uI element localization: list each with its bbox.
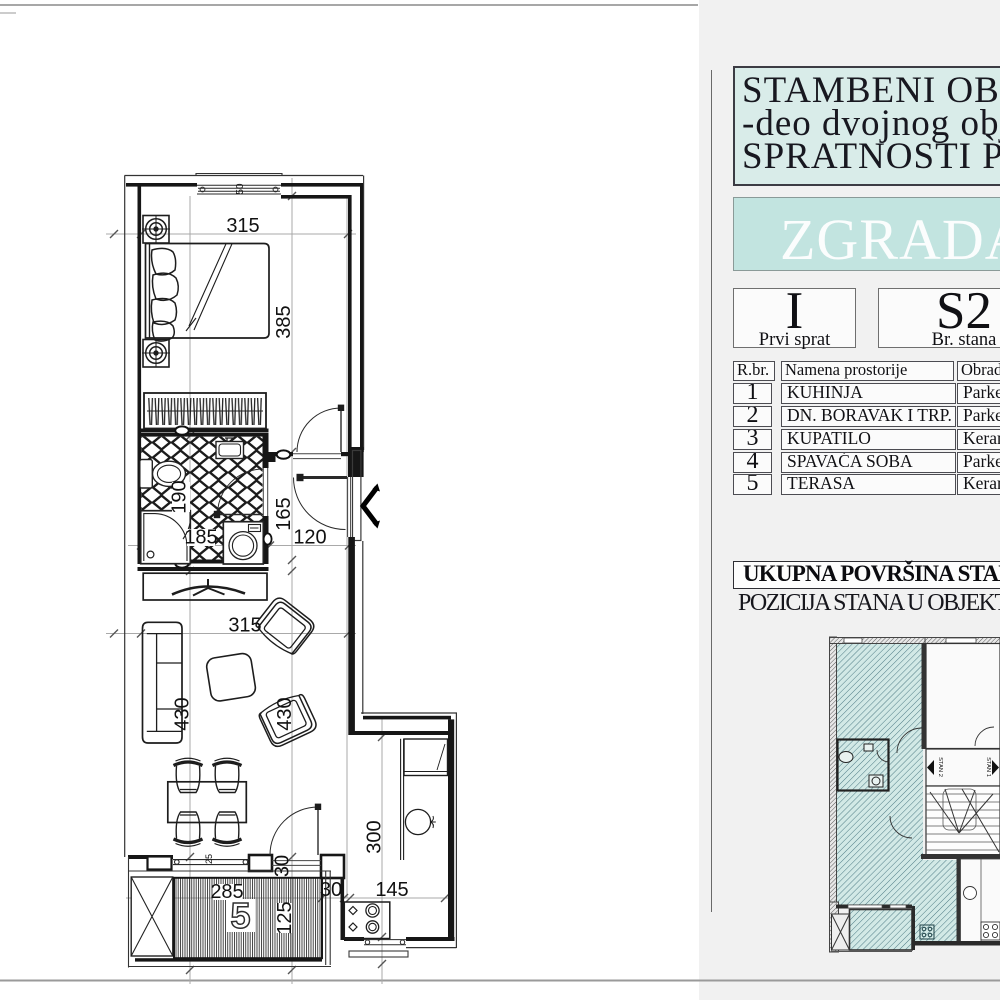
svg-text:STAN 2: STAN 2 xyxy=(937,757,943,777)
svg-text:430: 430 xyxy=(172,697,194,730)
svg-text:30: 30 xyxy=(272,855,294,877)
svg-text:165: 165 xyxy=(273,497,295,530)
svg-text:190: 190 xyxy=(169,480,191,513)
svg-text:300: 300 xyxy=(364,820,386,853)
svg-text:120: 120 xyxy=(293,527,326,549)
svg-text:430: 430 xyxy=(274,697,296,730)
svg-text:385: 385 xyxy=(273,305,295,338)
svg-text:315: 315 xyxy=(228,615,261,637)
svg-text:5: 5 xyxy=(230,895,250,936)
svg-text:25: 25 xyxy=(204,854,214,864)
svg-text:125: 125 xyxy=(274,901,296,934)
svg-text:145: 145 xyxy=(375,879,408,901)
svg-text:30: 30 xyxy=(320,879,342,901)
svg-text:STAN 1: STAN 1 xyxy=(985,757,991,777)
svg-text:50: 50 xyxy=(235,183,246,195)
svg-text:185: 185 xyxy=(184,527,217,549)
svg-text:315: 315 xyxy=(226,215,259,237)
